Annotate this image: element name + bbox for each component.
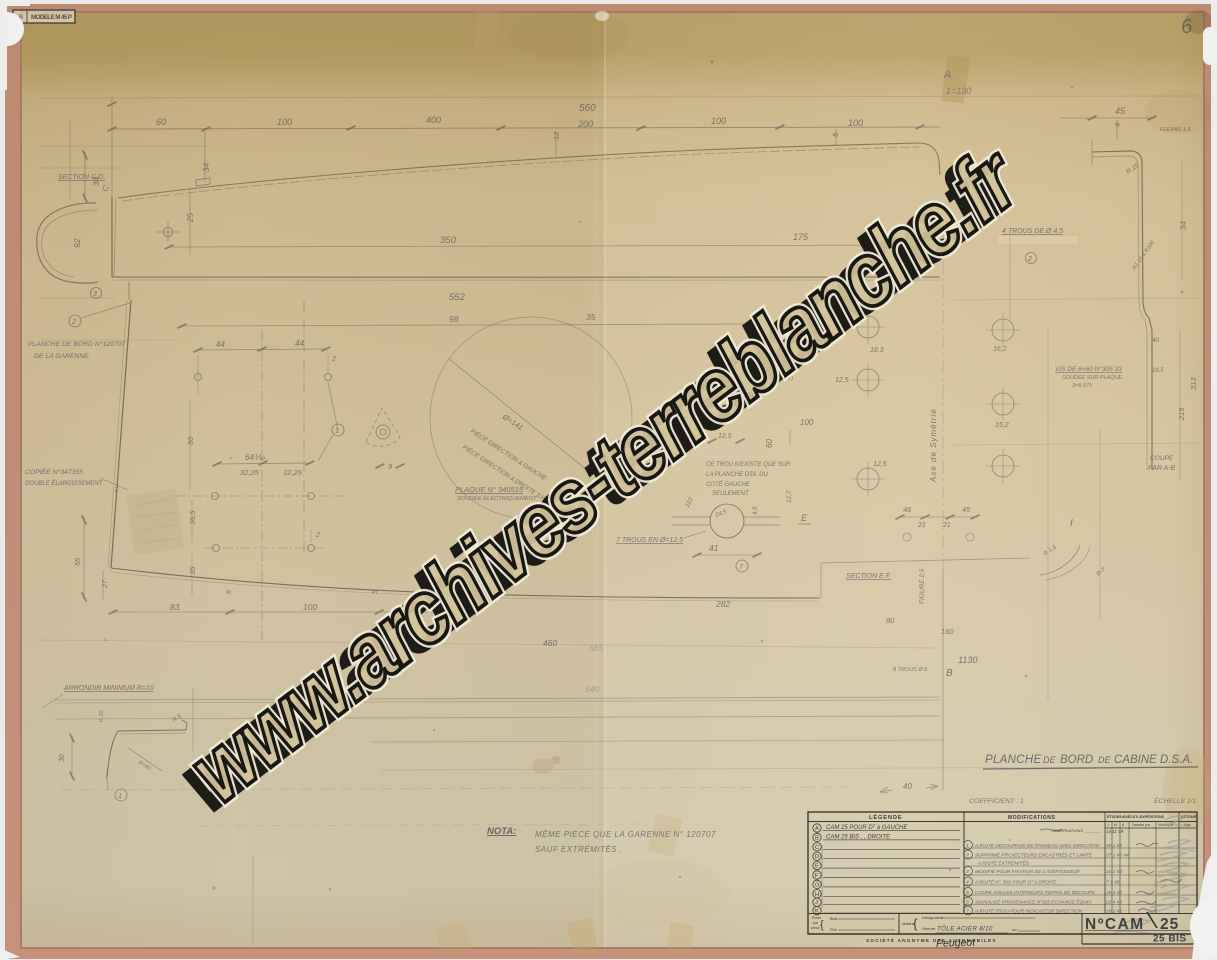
svg-text:M: M: [1114, 823, 1117, 827]
svg-text:J: J: [1107, 823, 1109, 827]
svg-text:22 4 40: 22 4 40: [1105, 900, 1122, 906]
svg-text:SAUF EXTRÉMITÉS .: SAUF EXTRÉMITÉS .: [535, 845, 622, 854]
svg-text:350: 350: [440, 235, 457, 246]
svg-text:BORD: BORD: [1060, 754, 1093, 766]
svg-text:26 3 40: 26 3 40: [1105, 890, 1122, 896]
svg-text:313: 313: [1189, 377, 1198, 390]
svg-text:AJOUTÉ TROU POUR INDICATEUR: AJOUTÉ TROU POUR INDICATEUR DIRECTION: [974, 908, 1083, 915]
svg-text:100: 100: [277, 117, 292, 127]
svg-text:3: 3: [966, 869, 969, 875]
svg-text:J: J: [815, 900, 818, 906]
svg-text:2: 2: [71, 319, 76, 326]
svg-text:160: 160: [941, 627, 954, 636]
svg-text:92: 92: [72, 238, 82, 248]
svg-text:D: D: [815, 854, 819, 860]
svg-text:AJOUTÉ N°. BIS POUR Dᵀ à: AJOUTÉ N°. BIS POUR Dᵀ à DROITE: [974, 879, 1057, 886]
svg-text:565: 565: [589, 643, 603, 653]
svg-text:COPIÉE N°347355: COPIÉE N°347355: [25, 467, 83, 476]
svg-text:R.10: R.10: [99, 709, 105, 722]
svg-text:552: 552: [449, 292, 466, 303]
svg-text:A: A: [815, 826, 819, 832]
svg-text:34: 34: [202, 163, 211, 172]
svg-text:SUPPRIMÉ PROJECTEURS ENCASTR: SUPPRIMÉ PROJECTEURS ENCASTRÉS ET LIMITÉ: [975, 852, 1093, 859]
svg-text:560: 560: [579, 103, 596, 114]
svg-text:18 2 41: 18 2 41: [1106, 909, 1122, 915]
svg-text:ÉCHELLE 1/1: ÉCHELLE 1/1: [1154, 796, 1197, 805]
svg-text:32,25: 32,25: [240, 468, 260, 477]
svg-text:2: 2: [331, 356, 336, 363]
svg-text:36,5: 36,5: [188, 510, 197, 525]
svg-text:45: 45: [1115, 106, 1126, 116]
svg-text:100: 100: [800, 418, 814, 427]
svg-text:2: 2: [315, 532, 320, 539]
svg-text:FLEXAD 1,5: FLEXAD 1,5: [1160, 127, 1192, 133]
svg-text:12,7: 12,7: [786, 490, 793, 503]
svg-text:34: 34: [1179, 221, 1188, 230]
svg-text:200: 200: [577, 119, 593, 129]
svg-text:MODIFIÉ POUR FIXATION DE L: MODIFIÉ POUR FIXATION DE L’AVERTISSEUR: [975, 868, 1080, 875]
svg-text:80: 80: [186, 436, 195, 445]
svg-text:32,25: 32,25: [283, 468, 303, 477]
svg-text:SEULEMENT: SEULEMENT: [712, 491, 750, 497]
svg-text:8: 8: [226, 590, 233, 594]
svg-text:LA PLANCHE D59. DU: LA PLANCHE D59. DU: [706, 472, 768, 478]
svg-text:7 TROUS EN Ø=12,5: 7 TROUS EN Ø=12,5: [616, 537, 683, 544]
svg-text:64⅒: 64⅒: [245, 453, 266, 462]
svg-text:7: 7: [966, 909, 969, 915]
svg-text:12,5: 12,5: [835, 377, 849, 384]
svg-text:B: B: [946, 668, 953, 679]
svg-text:100: 100: [303, 602, 317, 612]
svg-text:A: A: [943, 69, 951, 81]
svg-text:Brut: Brut: [830, 916, 838, 921]
svg-text:175: 175: [793, 232, 809, 242]
svg-text:COEFFICIENT : 1: COEFFICIENT : 1: [969, 798, 1024, 805]
svg-text:46: 46: [903, 505, 912, 514]
svg-text:25 BIS: 25 BIS: [1153, 934, 1187, 945]
svg-text:H: H: [815, 892, 819, 898]
svg-text:CAM 25 POUR Dᵀ à GAUCHE: CAM 25 POUR Dᵀ à GAUCHE: [826, 824, 908, 831]
svg-text:7 3 40: 7 3 40: [1106, 880, 1120, 886]
svg-text:400: 400: [426, 115, 441, 125]
svg-text:CABINE D.S.A.: CABINE D.S.A.: [1114, 754, 1193, 766]
svg-text:pièce: pièce: [811, 926, 820, 930]
svg-text:SECTION E.F.: SECTION E.F.: [846, 573, 891, 580]
svg-text:I: I: [1070, 518, 1073, 529]
svg-text:SIGNALISÉ PROVENANCE N°325: SIGNALISÉ PROVENANCE N°325 ÉCHANGE ÉQUIV…: [975, 899, 1092, 906]
svg-text:16 2 40: 16 2 40: [1106, 869, 1122, 875]
svg-text:3×8 575: 3×8 575: [1072, 383, 1093, 389]
svg-text:21: 21: [917, 522, 926, 529]
svg-text:ou:: ou:: [1012, 927, 1018, 932]
svg-text:1130: 1130: [958, 655, 977, 665]
svg-text:6: 6: [966, 900, 969, 906]
svg-text:CE TROU N'EXISTE QUE SUR: CE TROU N'EXISTE QUE SUR: [706, 462, 791, 468]
svg-text:45: 45: [962, 505, 971, 514]
svg-text:35: 35: [188, 566, 197, 575]
svg-text:NOTA:: NOTA:: [487, 826, 516, 837]
svg-text:F: F: [815, 873, 819, 879]
svg-text:Serrure: Serrure: [922, 926, 936, 931]
svg-text:PLANCHE DE BORD N°120707: PLANCHE DE BORD N°120707: [28, 340, 125, 348]
svg-text:27 1 40 44: 27 1 40 44: [1105, 853, 1129, 859]
svg-text:4: 4: [1113, 123, 1122, 127]
svg-text:80: 80: [886, 616, 895, 625]
svg-text:MODIFICATIONS: MODIFICATIONS: [1008, 815, 1055, 821]
svg-text:282: 282: [715, 599, 730, 609]
svg-text:COTÉ GAUCHE: COTÉ GAUCHE: [706, 481, 751, 488]
svg-text:DE LA GARENNE: DE LA GARENNE: [34, 353, 89, 360]
svg-text:5: 5: [966, 890, 969, 896]
svg-text:83: 83: [170, 602, 180, 612]
svg-text:B: B: [815, 835, 819, 841]
svg-text:DE: DE: [1043, 755, 1056, 765]
svg-text:14 11 39: 14 11 39: [1106, 829, 1124, 834]
svg-text:1: 1: [118, 793, 122, 800]
svg-text:par: par: [813, 921, 819, 925]
svg-text:1=130: 1=130: [946, 86, 971, 96]
svg-text:15,2: 15,2: [995, 422, 1009, 429]
svg-text:COUPE: COUPE: [1150, 455, 1174, 462]
svg-text:CAM 25 BIS , ,: CAM 25 BIS , , DROITE: [826, 835, 891, 841]
svg-text:SECTION C.D.: SECTION C.D.: [58, 174, 105, 181]
svg-text:100: 100: [848, 118, 863, 128]
svg-text:215: 215: [1177, 407, 1186, 421]
svg-text:Axe de Symétrie: Axe de Symétrie: [929, 408, 938, 483]
svg-text:VIS DE 6×60 N°305 33: VIS DE 6×60 N°305 33: [1055, 365, 1122, 373]
svg-text:Dessiné par: Dessiné par: [1132, 823, 1151, 827]
svg-text:41: 41: [709, 543, 719, 553]
svg-text:60: 60: [156, 117, 166, 127]
svg-text:35: 35: [586, 312, 596, 322]
svg-text:18,3: 18,3: [870, 347, 884, 354]
svg-text:1: 1: [335, 428, 339, 435]
svg-text:100: 100: [711, 116, 726, 126]
svg-text:AJOUTÉ EXTRÉMITÉS: AJOUTÉ EXTRÉMITÉS: [977, 860, 1030, 867]
svg-text:MÊME PIÈCE QUE LA GARENNE N°: MÊME PIÈCE QUE LA GARENNE N° 120707: [535, 830, 716, 839]
svg-text:AJOUTÉ DÉCOUPAGE DE PANNEAU: AJOUTÉ DÉCOUPAGE DE PANNEAU AVEC DIRECTI…: [974, 842, 1100, 849]
svg-text:LÉGENDE: LÉGENDE: [869, 813, 903, 821]
svg-text:Peugeot: Peugeot: [936, 936, 977, 949]
svg-text:PAR A-B: PAR A-B: [1148, 465, 1176, 472]
svg-text:55: 55: [73, 557, 82, 566]
svg-text:540: 540: [585, 684, 599, 694]
svg-text:12: 12: [552, 131, 561, 140]
svg-text:2: 2: [1027, 256, 1032, 263]
svg-text:G: G: [815, 882, 820, 888]
svg-text:4: 4: [966, 880, 969, 886]
svg-text:E: E: [801, 513, 808, 523]
svg-text:DOUBLE ÉLARGISSEMENT: DOUBLE ÉLARGISSEMENT: [25, 480, 104, 487]
svg-text:PLANCHE: PLANCHE: [985, 754, 1041, 766]
svg-text:3: 3: [93, 291, 97, 298]
svg-text:FIGURE 2,5: FIGURE 2,5: [919, 568, 926, 604]
svg-text:460: 460: [543, 638, 557, 648]
svg-text:MODELE M 45 P: MODELE M 45 P: [31, 14, 72, 21]
svg-text:C: C: [815, 845, 819, 851]
svg-text:SOCIÉTÉ ANONYME DES AUTOMOB: SOCIÉTÉ ANONYME DES AUTOMOBILES: [866, 936, 997, 943]
svg-text:40: 40: [903, 782, 912, 791]
svg-text:E: E: [815, 864, 819, 870]
svg-text:4,5: 4,5: [753, 506, 759, 515]
svg-text:Fini: Fini: [830, 927, 837, 932]
svg-text:SOUDÉE SUR PLAQUE: SOUDÉE SUR PLAQUE: [1062, 374, 1123, 381]
svg-text:16,2: 16,2: [993, 346, 1007, 353]
svg-text:44: 44: [295, 339, 304, 348]
svg-text:40: 40: [1152, 338, 1159, 344]
svg-text:30: 30: [59, 754, 66, 762]
svg-text:ARRONDIR MINIMUM R=10: ARRONDIR MINIMUM R=10: [63, 685, 154, 692]
svg-text:8 TROUS Ø 5: 8 TROUS Ø 5: [893, 667, 928, 673]
svg-text:98: 98: [449, 314, 459, 324]
svg-text:{: {: [913, 916, 918, 931]
svg-text:25: 25: [186, 213, 195, 223]
svg-text:COUPE ANGLES INTÉRIEURS REP: COUPE ANGLES INTÉRIEURS REPRIS DE DÉCOUP…: [975, 889, 1096, 896]
svg-text:Désignation: Désignation: [922, 915, 943, 920]
svg-text:60: 60: [765, 439, 774, 448]
svg-text:4 TROUS DE Ø 4,5: 4 TROUS DE Ø 4,5: [1002, 228, 1063, 235]
svg-text:ÉTUDES•EXÉCUT•-EXPÉDITIONS: ÉTUDES•EXÉCUT•-EXPÉDITIONS: [1107, 814, 1165, 819]
svg-text:12,5: 12,5: [873, 461, 887, 468]
svg-text:{: {: [820, 919, 824, 931]
svg-text:TÔLE ACIER 8/10: TÔLE ACIER 8/10: [937, 924, 993, 933]
svg-text:DE: DE: [1098, 755, 1111, 765]
svg-text:1: 1: [966, 843, 969, 849]
svg-text:44: 44: [216, 340, 225, 349]
svg-text:16,5: 16,5: [1152, 368, 1164, 374]
svg-text:30 1 40: 30 1 40: [1106, 843, 1122, 849]
